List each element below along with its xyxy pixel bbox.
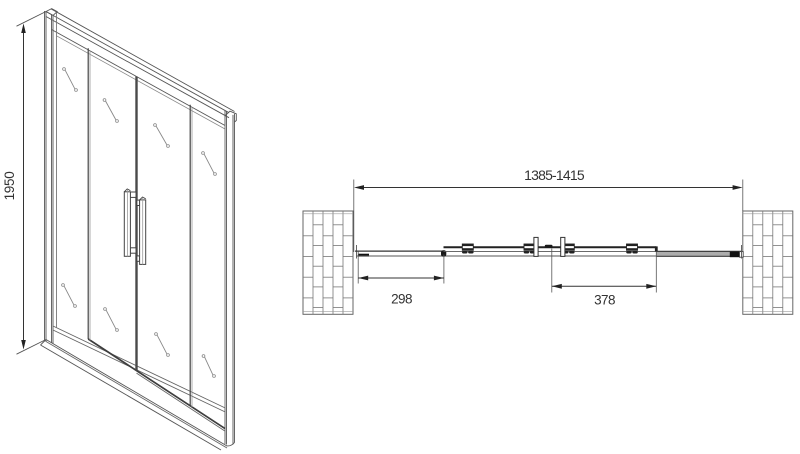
svg-text:1385-1415: 1385-1415 — [524, 167, 585, 183]
svg-text:1950: 1950 — [2, 172, 17, 201]
svg-text:378: 378 — [594, 293, 615, 308]
svg-text:298: 298 — [391, 292, 412, 307]
